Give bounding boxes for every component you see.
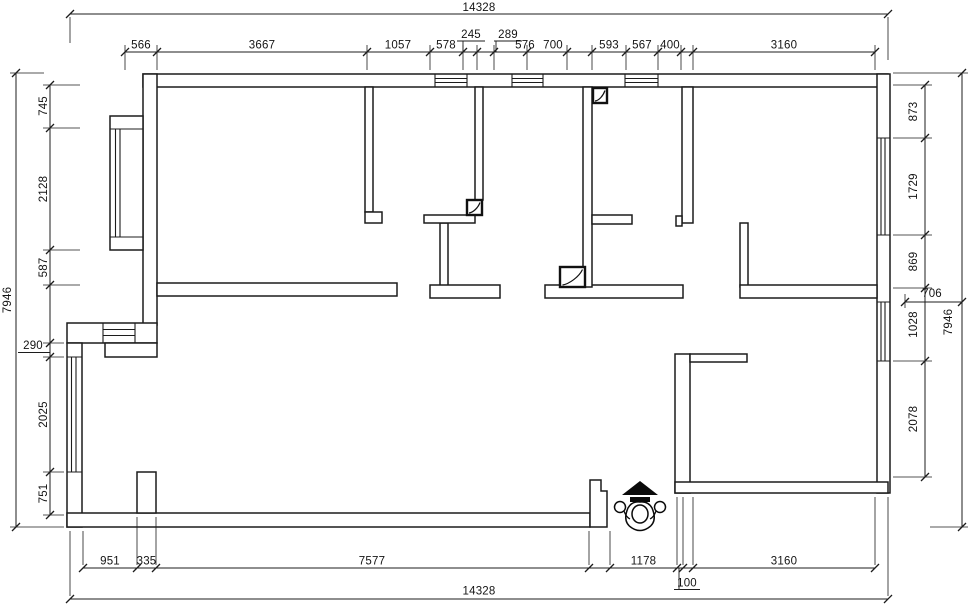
dim-top-245: 245 xyxy=(461,29,481,41)
wall-right xyxy=(877,74,890,493)
dim-bottom-7577: 7577 xyxy=(359,556,385,568)
dim-top-overall: 14328 xyxy=(463,2,496,14)
wall-left-upper xyxy=(143,74,157,325)
dim-right-706: 706 xyxy=(922,288,942,300)
wall-lowerright-top xyxy=(690,354,747,362)
walls xyxy=(67,74,890,527)
dim-top-576: 576 xyxy=(515,40,535,52)
wall-bottom xyxy=(67,513,590,527)
dim-left-2128: 2128 xyxy=(38,176,50,202)
dim-bottom-3160: 3160 xyxy=(771,556,797,568)
entry-arrow-icon xyxy=(622,481,658,495)
wall-int-1-foot xyxy=(365,212,382,223)
dim-top-3160: 3160 xyxy=(771,40,797,52)
floor-drain-icon xyxy=(560,267,585,287)
dim-left-2025: 2025 xyxy=(38,401,50,427)
dim-left-751: 751 xyxy=(38,484,50,504)
wall-left-step2 xyxy=(105,343,157,357)
floor-drain-icon xyxy=(467,200,482,215)
wall-mid-d xyxy=(740,285,877,298)
dim-top-578: 578 xyxy=(436,40,456,52)
dim-left-745: 745 xyxy=(38,96,50,116)
dim-top-1057: 1057 xyxy=(385,40,411,52)
person-figure-icon xyxy=(615,502,666,531)
dim-bottom-overall: 14328 xyxy=(463,586,496,598)
dim-bottom-335: 335 xyxy=(137,556,157,568)
wall-stub-bottom xyxy=(137,472,156,513)
dim-right-873: 873 xyxy=(908,102,920,122)
dim-right-869: 869 xyxy=(908,252,920,272)
wall-mid-a xyxy=(157,283,397,296)
entry-jamb xyxy=(590,480,607,527)
dim-left-overall: 7946 xyxy=(2,287,14,313)
floor-plan-page: 14328 566 3667 1057 578 245 289 576 700 … xyxy=(0,0,975,606)
dim-bottom-951: 951 xyxy=(100,556,120,568)
dim-top-3667: 3667 xyxy=(249,40,275,52)
wall-left-lower xyxy=(67,343,82,527)
dim-right-1028: 1028 xyxy=(908,311,920,337)
dim-right-2078: 2078 xyxy=(908,406,920,432)
wall-left-step xyxy=(67,323,157,343)
wall-int-3 xyxy=(583,87,592,287)
wall-mid-b-foot xyxy=(430,285,500,298)
entry-marker-icon xyxy=(615,481,666,531)
dim-left-290: 290 xyxy=(23,340,43,352)
wall-int-1 xyxy=(365,87,373,212)
floor-plan-canvas: 14328 566 3667 1057 578 245 289 576 700 … xyxy=(0,0,975,606)
wall-int-2 xyxy=(475,87,483,200)
dim-bottom-1178: 1178 xyxy=(631,556,657,568)
dim-top-593: 593 xyxy=(599,40,619,52)
wall-top xyxy=(143,74,888,87)
wall-int-4-notch xyxy=(676,216,682,226)
wall-lowerright-bottom xyxy=(675,482,888,493)
dim-right-1729: 1729 xyxy=(908,173,920,199)
dim-right-overall: 7946 xyxy=(943,309,955,335)
dim-top-567: 567 xyxy=(632,40,652,52)
dim-top-566: 566 xyxy=(131,40,151,52)
dim-top-700: 700 xyxy=(543,40,563,52)
dim-top-400: 400 xyxy=(660,40,680,52)
dim-bottom-100: 100 xyxy=(677,578,697,590)
wall-mid-b-vert xyxy=(440,223,448,287)
wall-lowerright-left xyxy=(675,354,690,493)
floor-drain-icon xyxy=(593,88,607,103)
dim-left-587: 587 xyxy=(38,258,50,278)
wall-mid-d-vert xyxy=(740,223,748,287)
wall-int-4 xyxy=(682,87,693,223)
wall-int-3-shelf xyxy=(592,215,632,224)
